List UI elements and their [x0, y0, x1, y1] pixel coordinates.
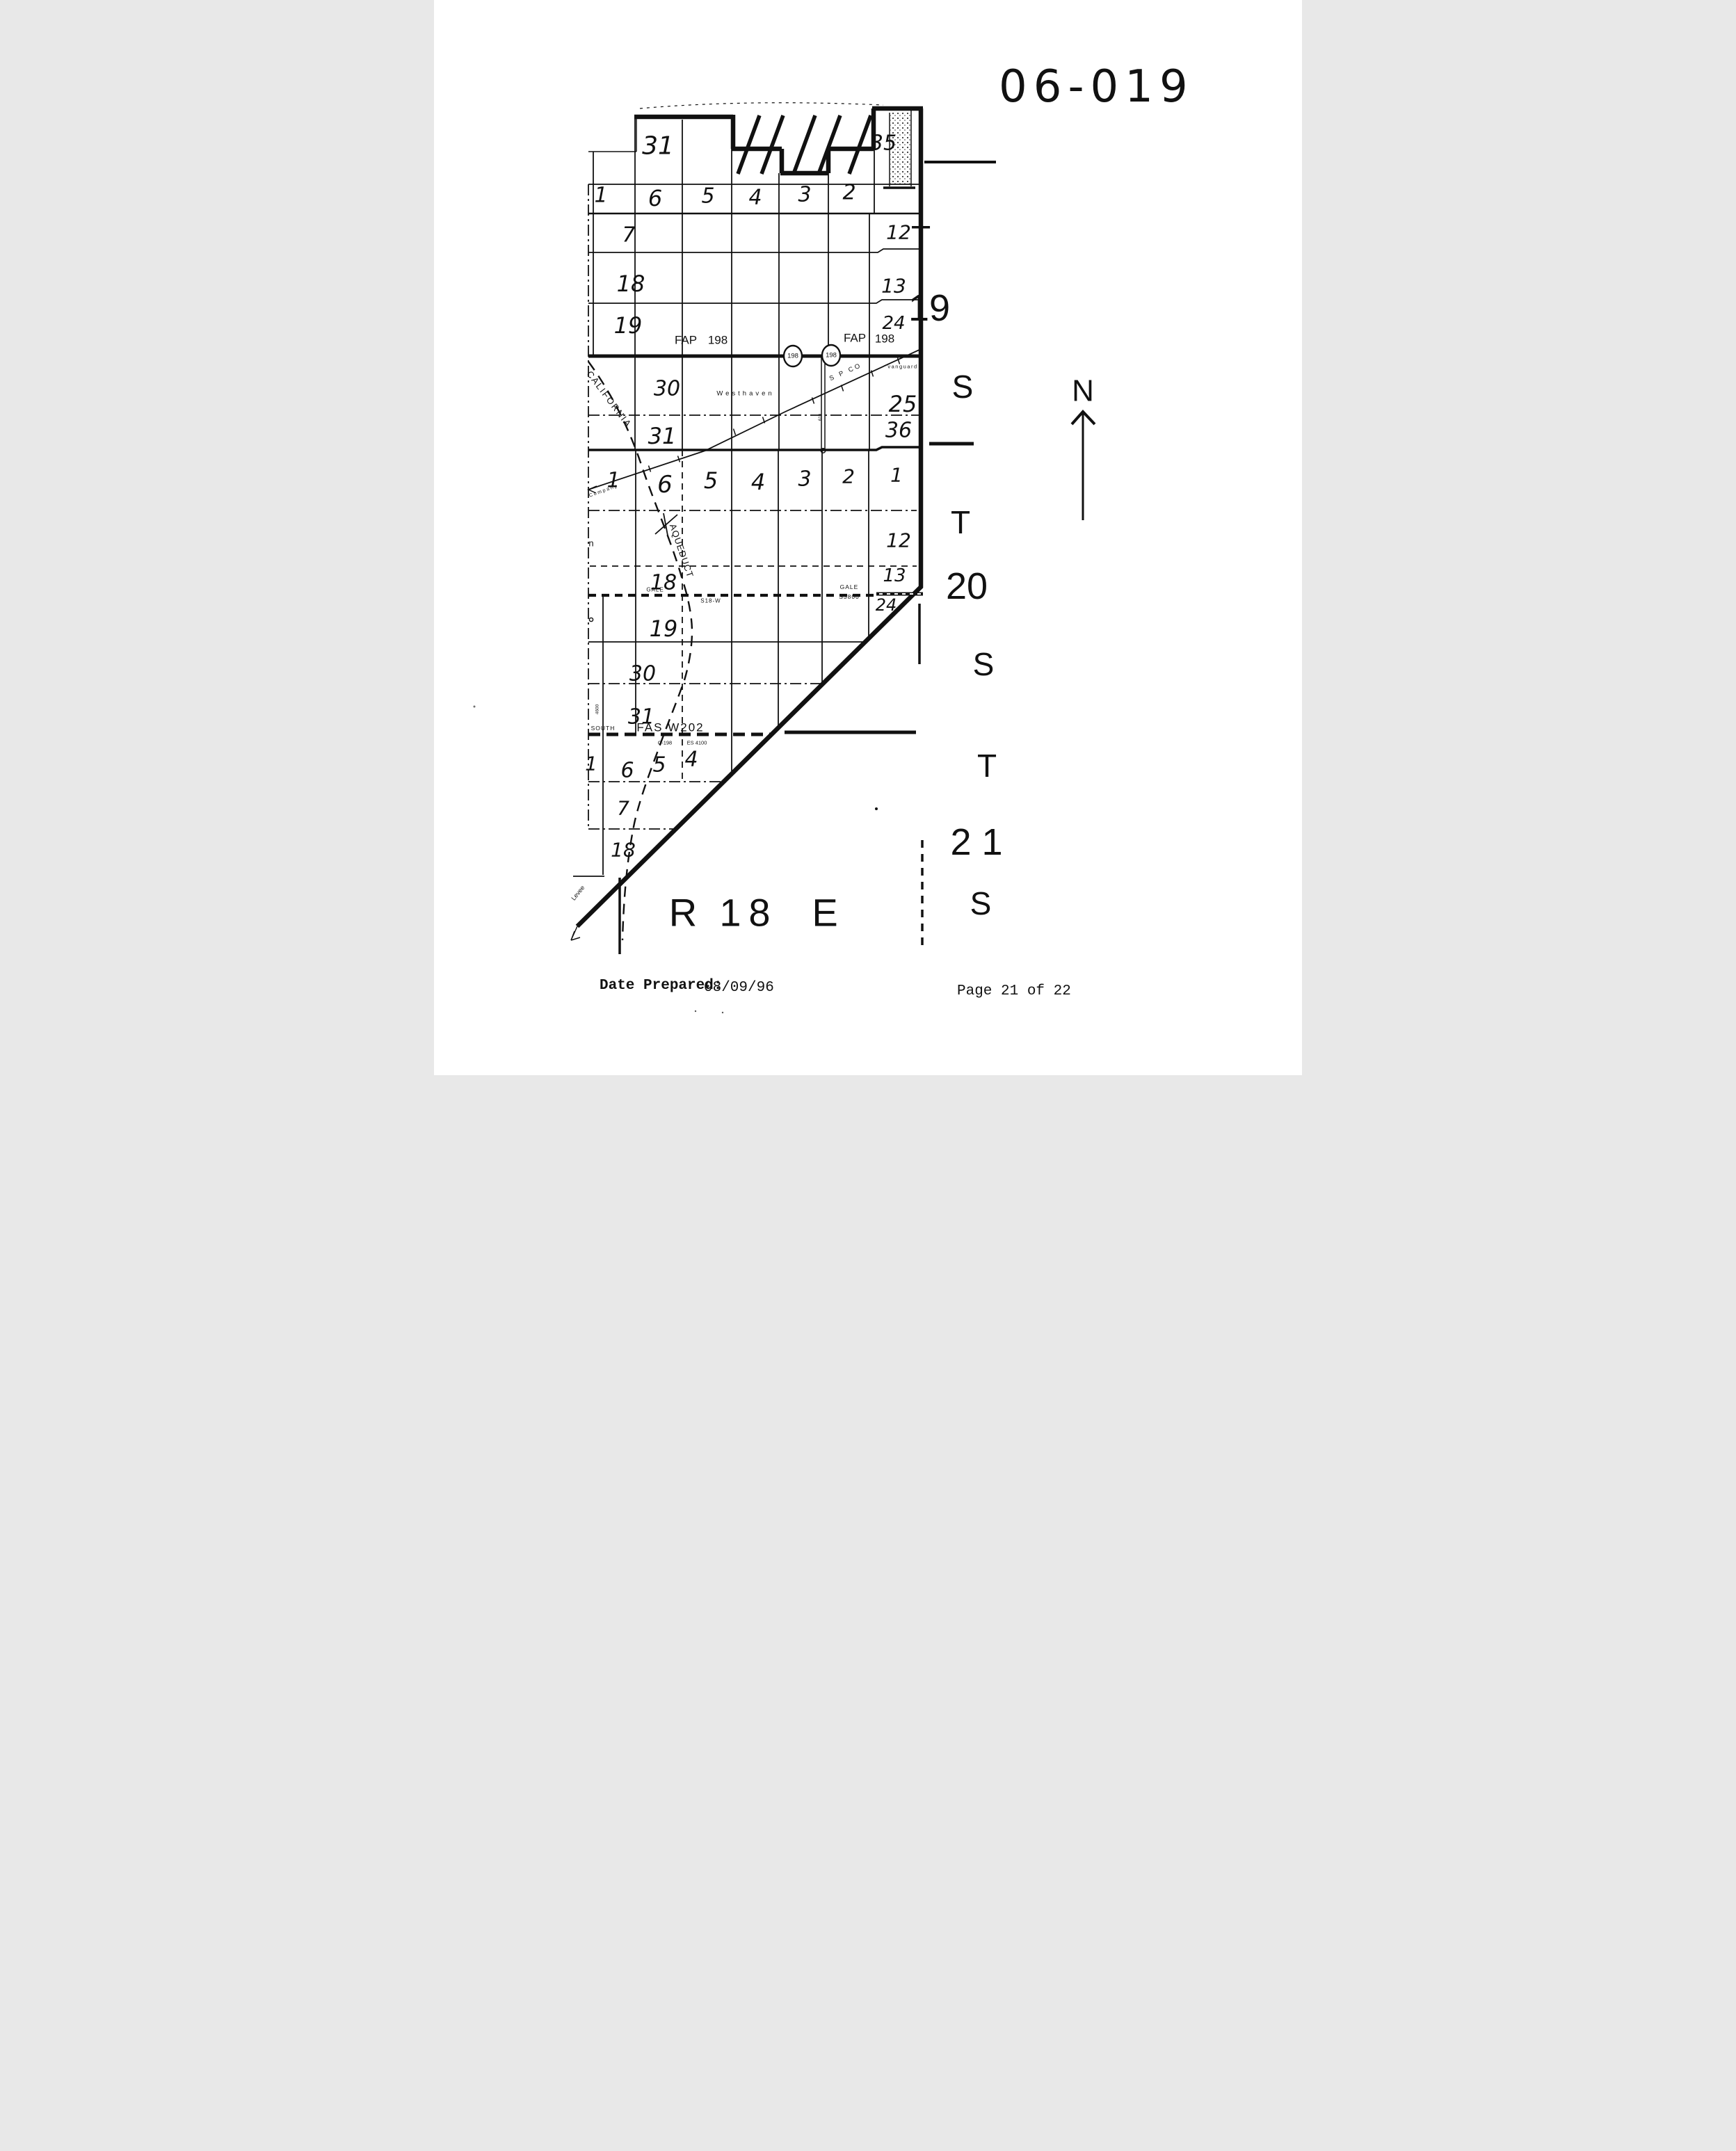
section-18-c: 18 — [611, 839, 636, 862]
north-arrow — [1072, 412, 1095, 520]
section-1-a: 1 — [594, 184, 607, 208]
section-1-b: 1 — [606, 469, 620, 493]
township-t19-t: T — [911, 219, 931, 255]
label-gale-left: GALE — [646, 587, 664, 593]
section-7-a: 7 — [622, 223, 635, 248]
section-36: 36 — [885, 419, 912, 443]
section-5-a: 5 — [701, 184, 714, 209]
section-1-c: 1 — [890, 464, 903, 487]
range-1: 1 — [719, 891, 741, 935]
scan-specks — [474, 618, 878, 1013]
section-19-a: 19 — [614, 312, 643, 339]
fap-label-right-2: 198 — [875, 332, 894, 346]
north-letter: N — [1072, 374, 1094, 408]
township-t20-20: 20 — [946, 565, 988, 607]
page-number: Page 21 of 22 — [957, 983, 1071, 999]
minor-road-619 — [821, 356, 825, 453]
california-aqueduct-line — [588, 362, 692, 940]
township-t21-t: T — [977, 748, 997, 784]
label-c198: C-198 — [658, 740, 672, 746]
label-road-619: 619 — [819, 413, 823, 421]
route-shield-198-left-text: 198 — [787, 353, 798, 360]
section-25: 25 — [889, 391, 917, 417]
section-4-c: 4 — [684, 748, 698, 772]
section-30-b: 30 — [629, 662, 656, 686]
section-1-d: 1 — [585, 752, 597, 775]
section-3-b: 3 — [798, 467, 811, 492]
section-5-b: 5 — [704, 467, 718, 494]
section-6-c: 6 — [620, 759, 634, 783]
date-prepared-value: 08/09/96 — [704, 980, 774, 996]
section-2-a: 2 — [842, 181, 855, 205]
township-t19-s: S — [952, 369, 974, 405]
section-6-b: 6 — [657, 471, 673, 499]
section-4-b: 4 — [751, 469, 765, 495]
section-31-a: 31 — [642, 132, 674, 161]
section-24-a: 24 — [882, 313, 905, 334]
section-18-a: 18 — [617, 271, 645, 297]
label-south: SOUTH — [591, 725, 616, 732]
label-vanguard: vanguard — [887, 364, 917, 370]
boundary-hatch-strokes — [738, 115, 871, 174]
fap-label-right-1: FAP — [844, 332, 866, 345]
route-shield-198-right-text: 198 — [826, 352, 837, 360]
fap-label-left-2: 198 — [708, 334, 728, 347]
map-text-layer: 313516543271218131924FAP198FAP1981981983… — [570, 131, 1093, 935]
township-t21-s: S — [970, 885, 992, 921]
fap-label-left-1: FAP — [675, 334, 697, 347]
township-t21-21: 2 1 — [950, 821, 1002, 863]
section-24-b: 24 — [876, 595, 897, 615]
range-8: 8 — [748, 891, 770, 935]
label-n-fragment: n — [588, 538, 593, 549]
section-13-a: 13 — [881, 275, 906, 298]
section-30-a: 30 — [654, 377, 680, 401]
label-california: CALIFORNIA — [585, 369, 634, 429]
range-e: E — [812, 891, 837, 935]
section-2-b: 2 — [842, 465, 855, 488]
label-westhaven: Westhaven — [716, 390, 774, 398]
label-gale-right: GALE — [840, 583, 859, 590]
township-t20-t: T — [951, 504, 970, 540]
section-35: 35 — [870, 131, 897, 156]
section-31-b: 31 — [648, 423, 677, 449]
label-s18w: S18-W — [700, 598, 721, 604]
section-12-b: 12 — [886, 529, 911, 552]
label-4600: 4600 — [595, 704, 600, 714]
range-r: R — [669, 891, 697, 935]
boundary-arrowhead — [571, 926, 580, 940]
township-t20-s: S — [973, 646, 995, 682]
section-6-a: 6 — [648, 185, 662, 211]
section-12-a: 12 — [886, 221, 911, 244]
section-13-b: 13 — [883, 565, 906, 586]
gale-road — [588, 594, 923, 595]
scanned-map-page: 313516543271218131924FAP198FAP1981981983… — [434, 0, 1302, 1075]
label-s3800: S3800 — [839, 593, 860, 600]
label-levee: Levee — [570, 884, 586, 901]
label-es4100: ES 4100 — [687, 740, 707, 746]
section-5-c: 5 — [652, 753, 666, 778]
section-7-b: 7 — [617, 797, 629, 820]
survey-map-canvas: 313516543271218131924FAP198FAP1981981983… — [434, 0, 1302, 1075]
section-4-a: 4 — [748, 186, 762, 210]
section-19-b: 19 — [650, 615, 678, 642]
label-fas-w202: FAS W202 — [636, 721, 704, 734]
section-3-a: 3 — [798, 183, 811, 207]
document-number: 06-019 — [999, 61, 1194, 113]
township-t19-19: 19 — [908, 287, 950, 329]
